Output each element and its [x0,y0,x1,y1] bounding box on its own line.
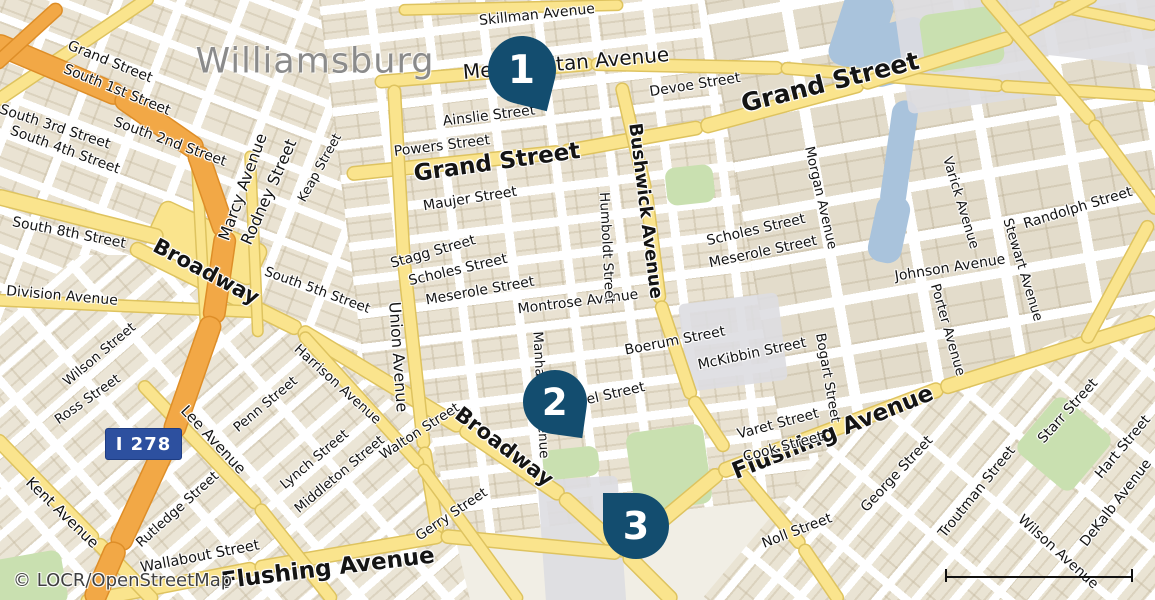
street-label-walton-street: Walton Street [378,401,462,462]
street-label-boerum-street: Boerum Street [624,324,727,357]
street-label-division-avenue: Division Avenue [6,284,119,308]
scale-bar-line [945,576,1133,578]
map-attribution: © LOCR/OpenStreetMap [13,570,232,591]
scale-bar-tick-left [945,569,947,582]
street-label-randolph-street: Randolph Street [1022,185,1134,231]
street-label-union-avenue: Union Avenue [386,301,410,413]
street-label-dekalb-avenue: DeKalb Avenue [1078,457,1154,549]
street-label-penn-street: Penn Street [232,375,301,436]
street-label-george-street: George Street [858,433,935,514]
street-label-noll-street: Noll Street [760,511,834,551]
marker-number: 3 [623,504,649,548]
street-label-south-2nd-street: South 2nd Street [112,115,228,169]
scale-bar-tick-right [1131,569,1133,582]
street-label-bushwick-avenue: Bushwick Avenue [625,122,664,300]
marker-number: 2 [542,381,568,424]
street-label-devoe-street: Devoe Street [649,71,742,99]
street-label-stewart-avenue: Stewart Avenue [1000,217,1044,323]
street-label-starr-street: Starr Street [1036,376,1101,446]
street-label-ainslie-street: Ainslie Street [442,103,536,128]
label-layer: WilliamsburgGrand StreetGrand StreetBroa… [0,0,1155,600]
street-label-maujer-street: Maujer Street [422,185,518,214]
street-label-humboldt-street: Humboldt Street [596,192,615,304]
street-label-keap-street: Keap Street [296,132,344,205]
street-label-broadway-west: Broadway [150,235,263,308]
marker-number: 1 [508,47,535,92]
map-canvas[interactable]: I 278 WilliamsburgGrand StreetGrand Stre… [0,0,1155,600]
street-label-rutledge-street: Rutledge Street [134,470,221,551]
place-williamsburg: Williamsburg [196,45,435,80]
street-label-troutman-street: Troutman Street [936,444,1018,541]
street-label-varick-avenue: Varick Avenue [940,155,981,250]
street-label-south-5th-street: South 5th Street [262,266,371,317]
street-label-south-8th-street: South 8th Street [11,215,127,251]
street-label-porter-avenue: Porter Avenue [927,282,966,377]
street-label-skillman-avenue: Skillman Avenue [478,2,595,28]
street-label-johnson-avenue: Johnson Avenue [894,252,1006,283]
street-label-harrison-avenue: Harrison Avenue [291,343,383,428]
street-label-lee-avenue: Lee Avenue [178,403,248,477]
street-label-kent-avenue: Kent Avenue [23,475,101,551]
street-label-gerry-street: Gerry Street [414,486,490,544]
street-label-grand-street-east: Grand Street [739,48,922,116]
street-label-montrose-avenue: Montrose Avenue [517,288,639,317]
street-label-wilson-street: Wilson Street [61,321,138,389]
map-marker-3[interactable]: 3 [603,493,669,559]
